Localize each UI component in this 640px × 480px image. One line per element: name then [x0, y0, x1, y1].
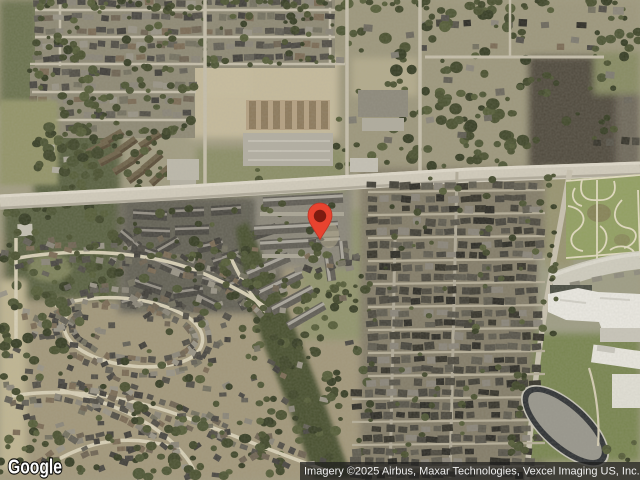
svg-text:Imagery ©2025 Airbus, Maxar Te: Imagery ©2025 Airbus, Maxar Technologies…: [304, 466, 640, 478]
svg-text:Google: Google: [8, 457, 62, 479]
